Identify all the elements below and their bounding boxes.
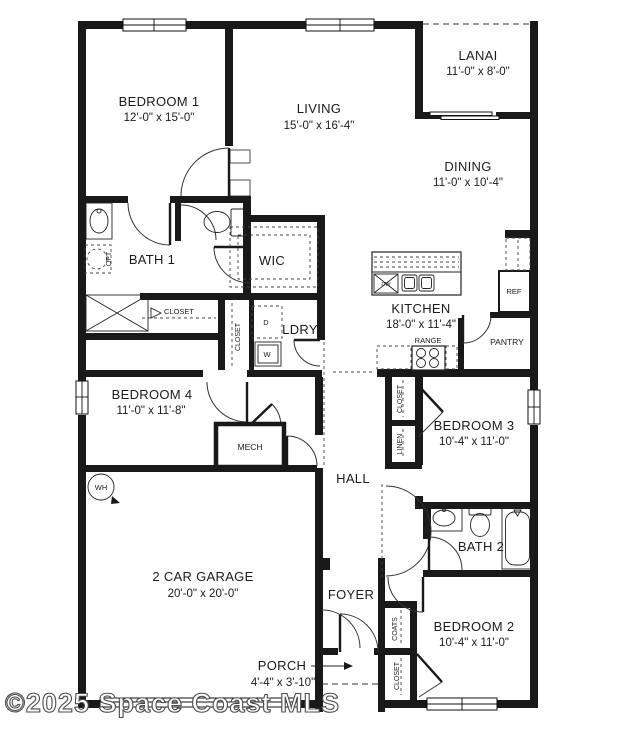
dims-living: 15'-0" x 16'-4": [284, 120, 355, 132]
door-toilet-nook: [181, 205, 216, 240]
label-garage: 2 CAR GARAGE: [152, 569, 253, 584]
label-dw: DW: [381, 282, 391, 288]
dims-bedroom1: 12'-0" x 15'-0": [124, 112, 195, 124]
label-bedroom2: BEDROOM 2: [434, 619, 515, 634]
wh-valve-icon: [111, 496, 120, 504]
label-mech: MECH: [237, 442, 262, 452]
label-bath1: BATH 1: [129, 252, 175, 267]
label-dryer: D: [263, 318, 269, 327]
label-hall: HALL: [336, 471, 370, 486]
watermark: ©2025 Space Coast MLS: [5, 688, 340, 718]
bath1-tub: [86, 295, 161, 331]
tub2-faucet-icon: [514, 510, 521, 516]
label-porch: PORCH: [258, 658, 306, 673]
door-laundry: [294, 340, 320, 366]
door-mech-vestibule: [287, 436, 317, 466]
dims-bedroom4: 11'-0" x 11'-8": [116, 405, 185, 417]
label-bath2: BATH 2: [458, 539, 504, 554]
window-bedroom3: [528, 390, 540, 424]
label-foyer: FOYER: [328, 587, 374, 602]
dims-bedroom3: 10'-4" x 11'-0": [439, 436, 509, 448]
label-living: LIVING: [297, 101, 341, 116]
label-washer: W: [263, 350, 271, 359]
dims-kitchen: 18'-0" x 11'-4": [386, 319, 456, 331]
window-bedroom4: [76, 381, 88, 414]
label-bedroom3: BEDROOM 3: [434, 418, 515, 433]
label-closet-bedroom3: CLOSET: [397, 384, 404, 413]
label-bedroom1: BEDROOM 1: [119, 94, 200, 109]
label-ref: REF: [507, 287, 522, 296]
floor-plan-drawing: BEDROOM 1 12'-0" x 15'-0" LIVING 15'-0" …: [0, 0, 638, 736]
label-wic: WIC: [259, 253, 285, 268]
label-linen: LINEN: [397, 434, 404, 455]
window-bedroom1: [123, 19, 186, 31]
door-front: [340, 614, 378, 652]
bath1-vanity: [86, 203, 112, 239]
tub-faucet-icon: [151, 308, 161, 318]
bath1-toilet: [204, 209, 244, 236]
bath2-tub: [502, 507, 533, 569]
arrow-head: [344, 662, 353, 670]
dims-lanai: 11'-0" x 8'-0": [446, 66, 509, 78]
dims-garage: 20'-0" x 20'-0": [168, 588, 239, 600]
kitchen-island: [372, 252, 461, 295]
bath2-toilet: [469, 507, 491, 537]
label-opt: OPT: [106, 251, 113, 266]
bifold-closet-bedroom2: [417, 654, 442, 697]
refrigerator: [499, 238, 530, 312]
label-closet-bath1: CLOSET: [164, 307, 194, 316]
label-ldry: LDRY: [282, 322, 318, 337]
label-lanai: LANAI: [458, 48, 497, 63]
label-kitchen: KITCHEN: [391, 301, 450, 316]
window-bedroom2: [427, 698, 497, 710]
label-dining: DINING: [444, 159, 491, 174]
label-wh: WH: [95, 483, 108, 492]
label-closet-bedroom2: CLOSET: [394, 661, 401, 690]
label-pantry: PANTRY: [490, 337, 524, 347]
door-bath1: [128, 203, 170, 245]
label-coats: COATS: [392, 617, 399, 641]
window-living: [306, 19, 374, 31]
door-jamb-bedroom1: [230, 150, 250, 196]
kitchen-range-counter: [377, 346, 457, 370]
door-bedroom1: [181, 148, 229, 196]
door-bedroom4: [207, 382, 247, 422]
label-bedroom4: BEDROOM 4: [112, 387, 193, 402]
dims-bedroom2: 10'-4" x 11'-0": [439, 637, 509, 649]
dims-dining: 11'-0" x 10'-4": [433, 177, 503, 189]
label-range: RANGE: [415, 336, 442, 345]
range: [412, 346, 445, 370]
label-closet-strip: CLOSET: [235, 322, 242, 351]
door-pantry: [463, 315, 491, 343]
floor-plan: BEDROOM 1 12'-0" x 15'-0" LIVING 15'-0" …: [0, 0, 638, 736]
